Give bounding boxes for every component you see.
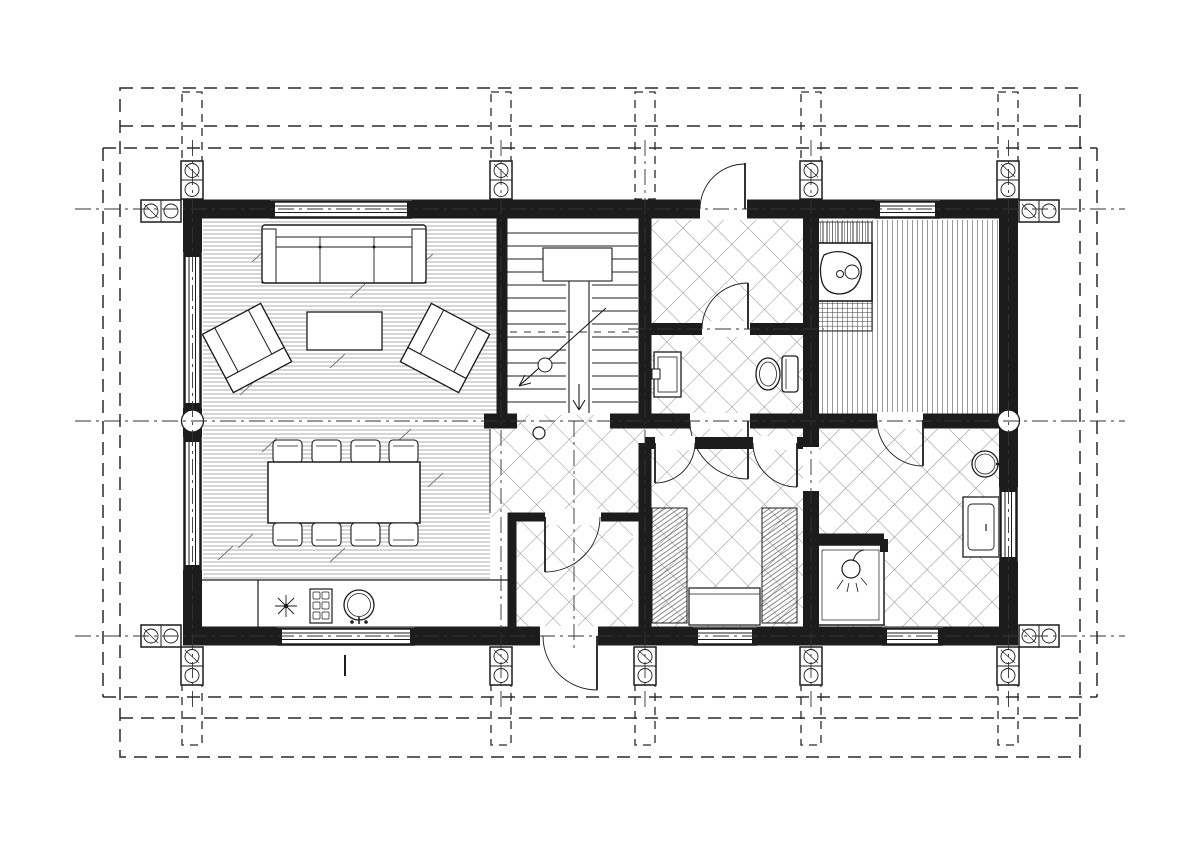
window-wardrobe-bottom [693, 627, 757, 646]
dining-chair [273, 440, 302, 463]
room-hall-floor [490, 413, 649, 517]
closet-left [652, 508, 687, 623]
coffee-table [307, 312, 382, 350]
log-end-left-top [141, 200, 181, 222]
log-end-right-top [1019, 200, 1059, 222]
log-post-bottom-right [997, 647, 1019, 685]
floor-plan-drawing [0, 0, 1200, 848]
room-rear-hall-floor [649, 220, 807, 327]
window-kitchen-bottom [277, 627, 415, 646]
cooktop-star [275, 595, 297, 617]
dining-chair [312, 440, 341, 463]
door-back-entrance [700, 163, 747, 219]
hall-post-marker [533, 427, 545, 439]
window-bathroom-bottom [882, 627, 943, 646]
room-vestibule-floor [516, 517, 633, 629]
dining-chair [273, 523, 302, 546]
sauna-duckboard-strip [818, 222, 872, 243]
wardrobe-bench [689, 588, 760, 625]
closet-right [762, 508, 797, 623]
dining-chair [351, 440, 380, 463]
shower [817, 545, 884, 625]
floor-plan-page [0, 0, 1200, 848]
wc-sink [652, 352, 681, 397]
log-post-top-right [997, 161, 1019, 199]
dining-chair [389, 523, 418, 546]
window-living-top [270, 200, 412, 219]
log-post-bottom-left [181, 647, 203, 685]
dining-table [268, 462, 420, 523]
sofa [262, 225, 426, 283]
kitchen-hob [310, 589, 332, 623]
sauna-bench [818, 301, 872, 331]
window-sauna-top [875, 200, 940, 219]
log-post-top-left [181, 161, 203, 199]
dining-chair [351, 523, 380, 546]
dining-chair [389, 440, 418, 463]
bathroom-vanity [963, 497, 999, 557]
dining-chair [312, 523, 341, 546]
